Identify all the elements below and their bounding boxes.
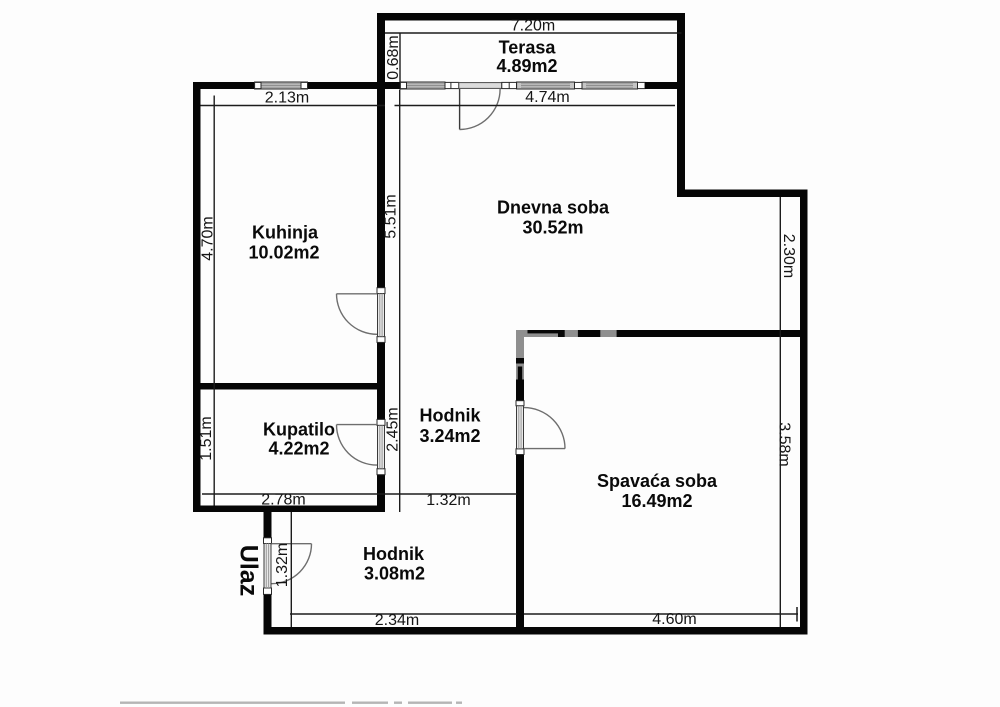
svg-text:Kupatilo: Kupatilo bbox=[263, 420, 335, 440]
svg-text:0.68m: 0.68m bbox=[385, 35, 402, 79]
svg-text:7.20m: 7.20m bbox=[511, 18, 555, 35]
svg-text:2.34m: 2.34m bbox=[375, 612, 419, 629]
svg-text:2.78m: 2.78m bbox=[261, 492, 305, 509]
svg-text:Hodnik: Hodnik bbox=[420, 406, 482, 426]
svg-text:30.52m: 30.52m bbox=[522, 218, 583, 238]
svg-text:4.89m2: 4.89m2 bbox=[496, 56, 557, 76]
svg-text:Terasa: Terasa bbox=[499, 38, 557, 58]
svg-text:10.02m2: 10.02m2 bbox=[248, 243, 319, 263]
svg-text:2.45m: 2.45m bbox=[385, 407, 402, 451]
svg-text:5.51m: 5.51m bbox=[383, 194, 400, 238]
svg-text:1.32m: 1.32m bbox=[274, 543, 291, 587]
svg-text:Spavaća soba: Spavaća soba bbox=[597, 471, 718, 491]
svg-text:4.60m: 4.60m bbox=[652, 611, 696, 628]
svg-text:4.22m2: 4.22m2 bbox=[268, 439, 329, 459]
svg-text:Hodnik: Hodnik bbox=[363, 544, 425, 564]
svg-text:4.70m: 4.70m bbox=[200, 216, 217, 260]
svg-text:2.30m: 2.30m bbox=[780, 234, 797, 278]
svg-text:1.32m: 1.32m bbox=[426, 492, 470, 509]
svg-text:3.24m2: 3.24m2 bbox=[419, 426, 480, 446]
svg-text:3.08m2: 3.08m2 bbox=[364, 564, 425, 584]
svg-text:Dnevna soba: Dnevna soba bbox=[497, 198, 610, 218]
svg-text:16.49m2: 16.49m2 bbox=[621, 491, 692, 511]
svg-text:2.13m: 2.13m bbox=[265, 90, 309, 107]
svg-text:Ulaz: Ulaz bbox=[234, 545, 262, 596]
svg-text:1.51m: 1.51m bbox=[198, 416, 215, 460]
svg-text:3.58m: 3.58m bbox=[776, 422, 793, 466]
svg-text:Kuhinja: Kuhinja bbox=[252, 223, 319, 243]
svg-text:4.74m: 4.74m bbox=[525, 89, 569, 106]
